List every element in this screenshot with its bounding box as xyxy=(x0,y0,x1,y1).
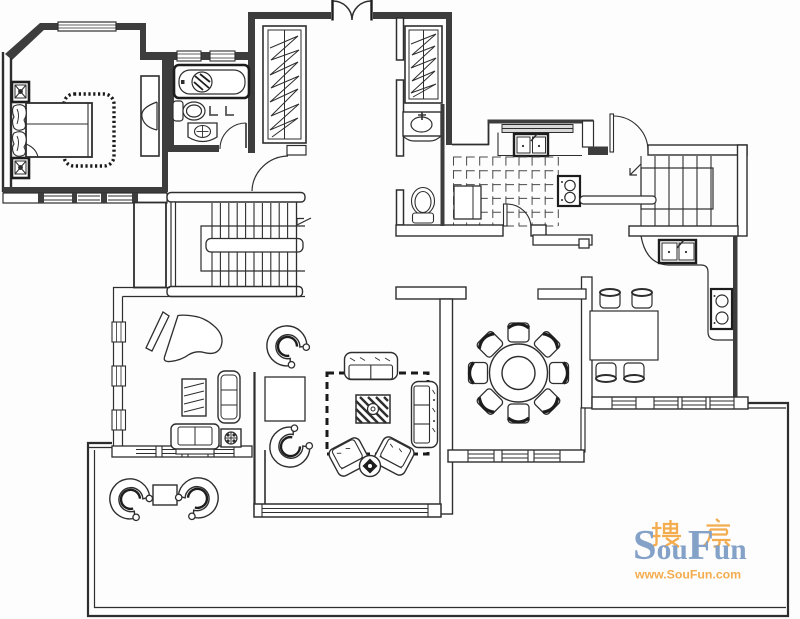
svg-text:www.SouFun.com: www.SouFun.com xyxy=(634,568,741,582)
